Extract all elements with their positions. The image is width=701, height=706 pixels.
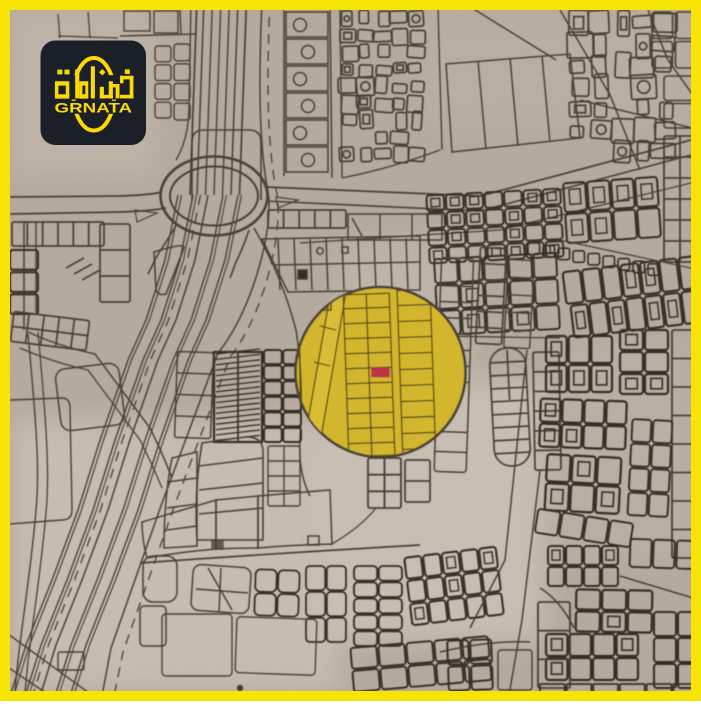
svg-text:GRNATA: GRNATA: [55, 100, 133, 115]
